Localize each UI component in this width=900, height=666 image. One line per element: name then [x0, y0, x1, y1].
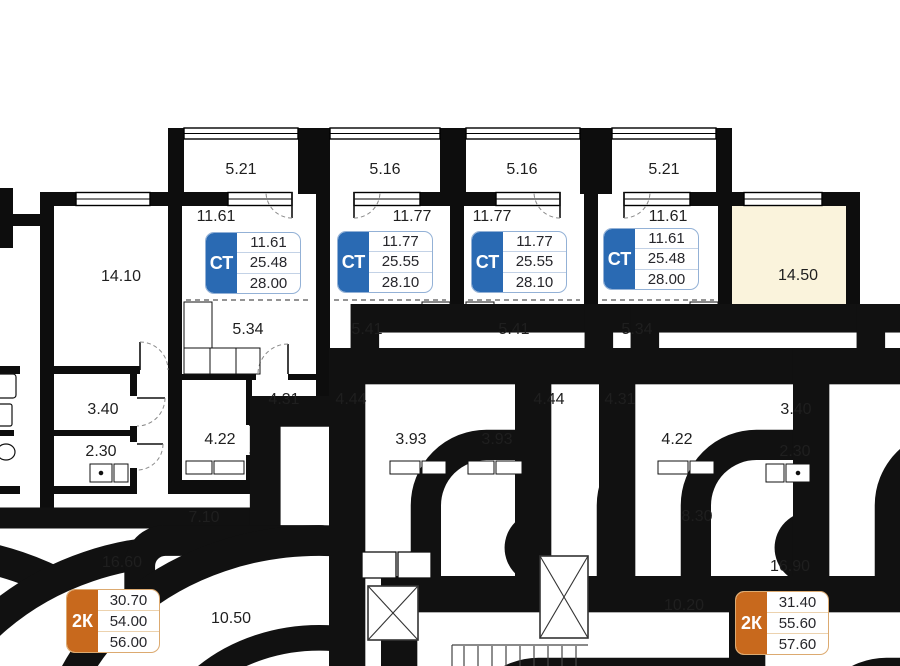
apartment-type-label: СТ: [338, 232, 369, 292]
room-area-label: 16.90: [770, 558, 810, 575]
area-value: 54.00: [98, 610, 159, 631]
utility-shaft: [398, 552, 431, 578]
room-area-label: 5.41: [351, 321, 382, 338]
area-value: 56.00: [98, 631, 159, 652]
area-value: 28.10: [369, 272, 432, 292]
apartment-type-label: СТ: [206, 233, 237, 293]
apartment-2k-right-badge[interactable]: 2К 31.40 55.60 57.60: [735, 591, 829, 655]
area-value: 11.61: [635, 229, 698, 248]
room-area-label: 5.16: [506, 161, 537, 178]
facade-window: [228, 193, 292, 206]
room-area-label: 10.50: [211, 610, 251, 627]
studio-1-badge[interactable]: СТ 11.61 25.48 28.00: [205, 232, 301, 294]
area-value: 25.48: [237, 252, 300, 272]
apartment-type-label: СТ: [604, 229, 635, 289]
area-value: 57.60: [767, 633, 828, 654]
room-area-label: 11.61: [649, 208, 688, 225]
room-area-label: 16.60: [102, 554, 142, 571]
balcony-window: [184, 128, 298, 139]
room-area-label: 8.30: [681, 508, 712, 525]
area-value: 25.55: [369, 251, 432, 271]
room-area-label: 4.31: [268, 391, 299, 408]
facade-window: [624, 193, 690, 206]
room-area-label: 5.21: [225, 161, 256, 178]
room-area-label: 14.50: [778, 267, 818, 284]
balcony-window: [612, 128, 716, 139]
area-value: 28.00: [237, 273, 300, 293]
room-area-label: 5.21: [648, 161, 679, 178]
facade-window: [76, 193, 150, 206]
apartment-type-label: 2К: [736, 592, 767, 654]
room-area-label: 4.31: [604, 391, 635, 408]
area-value: 55.60: [767, 612, 828, 633]
room-area-label: 11.77: [473, 208, 512, 225]
elevator-icon: [540, 556, 588, 638]
room-area-label: 7.10: [188, 509, 219, 526]
room-area-label: 3.93: [395, 431, 426, 448]
studio-2-badge[interactable]: СТ 11.77 25.55 28.10: [337, 231, 433, 293]
room-area-label: 5.34: [232, 321, 263, 338]
room-area-label: 11.77: [393, 208, 432, 225]
area-value: 11.61: [237, 233, 300, 252]
area-value: 25.48: [635, 248, 698, 268]
room-area-label: 5.41: [498, 321, 529, 338]
area-value: 30.70: [98, 590, 159, 610]
room-area-label: 4.44: [335, 391, 366, 408]
room-area-label: 10.20: [664, 597, 704, 614]
room-area-label: 3.93: [481, 431, 512, 448]
neighbor-fixtures-partial: [0, 374, 16, 460]
utility-shaft: [362, 552, 396, 578]
room-area-label: 4.22: [661, 431, 692, 448]
area-value: 11.77: [369, 232, 432, 251]
room-area-label: 5.34: [621, 321, 652, 338]
elevator-icon: [368, 586, 418, 640]
room-area-label: 11.61: [197, 208, 236, 225]
room-area-label: 5.16: [369, 161, 400, 178]
room-area-label: 14.10: [101, 268, 141, 285]
apartment-type-label: СТ: [472, 232, 503, 292]
room-area-label: 3.40: [87, 401, 118, 418]
room-area-label: 2.30: [85, 443, 116, 460]
room-area-label: 4.44: [533, 391, 564, 408]
facade-window: [354, 193, 420, 206]
facade-window: [744, 193, 822, 206]
area-value: 28.10: [503, 272, 566, 292]
balcony-window: [466, 128, 580, 139]
room-area-label: 4.22: [204, 431, 235, 448]
floor-plan-drawing: 5.21 5.16 5.16 5.21 11.61 11.77 11.77 11…: [0, 0, 900, 666]
room-area-label: 3.40: [780, 401, 811, 418]
apartment-2k-left-badge[interactable]: 2К 30.70 54.00 56.00: [66, 589, 160, 653]
area-value: 11.77: [503, 232, 566, 251]
area-value: 28.00: [635, 269, 698, 289]
floor-plan: 5.21 5.16 5.16 5.21 11.61 11.77 11.77 11…: [0, 0, 900, 666]
facade-window: [496, 193, 560, 206]
area-value: 31.40: [767, 592, 828, 612]
apartment-type-label: 2К: [67, 590, 98, 652]
studio-3-badge[interactable]: СТ 11.77 25.55 28.10: [471, 231, 567, 293]
room-area-label: 2.30: [779, 443, 810, 460]
balcony-window: [330, 128, 440, 139]
studio-4-badge[interactable]: СТ 11.61 25.48 28.00: [603, 228, 699, 290]
area-value: 25.55: [503, 251, 566, 271]
